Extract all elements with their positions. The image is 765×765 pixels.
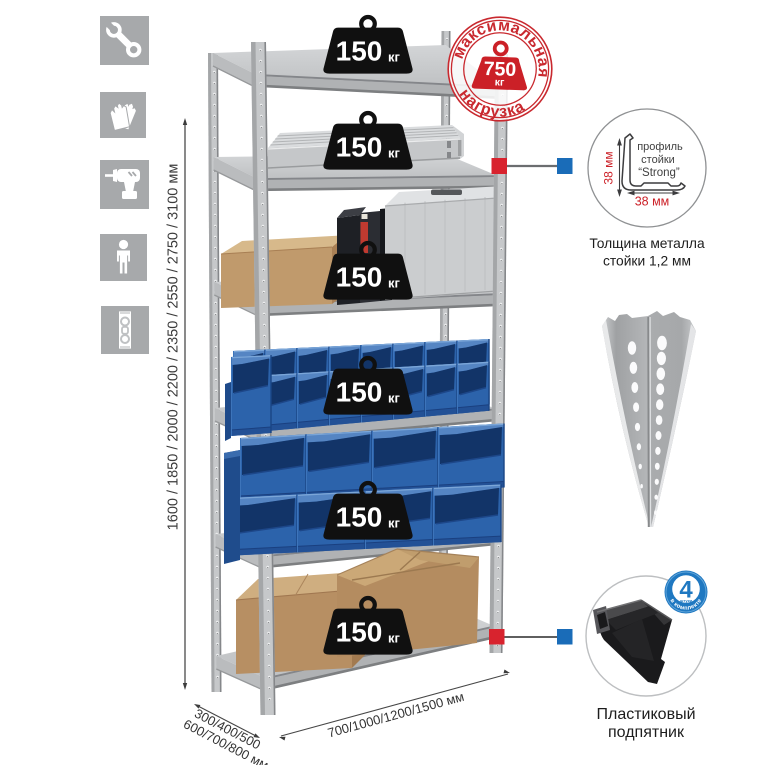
- svg-text:стойки: стойки: [641, 154, 675, 166]
- svg-text:кг: кг: [495, 76, 506, 88]
- svg-text:“Strong”: “Strong”: [638, 167, 680, 179]
- svg-text:кг: кг: [388, 631, 401, 646]
- svg-text:150: 150: [336, 36, 383, 67]
- svg-text:кг: кг: [388, 391, 401, 406]
- svg-text:150: 150: [336, 132, 383, 163]
- svg-text:150: 150: [336, 262, 383, 293]
- svg-text:кг: кг: [388, 146, 401, 161]
- svg-text:стойки 1,2 мм: стойки 1,2 мм: [603, 254, 691, 269]
- svg-text:штуки: штуки: [680, 598, 693, 603]
- svg-text:профиль: профиль: [637, 141, 683, 153]
- svg-text:подпятник: подпятник: [608, 724, 685, 741]
- svg-text:кг: кг: [388, 516, 401, 531]
- svg-text:150: 150: [336, 617, 383, 648]
- svg-text:Толщина металла: Толщина металла: [589, 236, 705, 251]
- svg-text:150: 150: [336, 502, 383, 533]
- svg-text:кг: кг: [388, 50, 401, 65]
- svg-text:150: 150: [336, 377, 383, 408]
- svg-text:38 мм: 38 мм: [602, 151, 616, 184]
- svg-text:кг: кг: [388, 276, 401, 291]
- svg-text:38 мм: 38 мм: [635, 195, 670, 209]
- svg-text:1600 / 1850 / 2000 / 2200 / 23: 1600 / 1850 / 2000 / 2200 / 2350 / 2550 …: [166, 164, 182, 531]
- svg-text:Пластиковый: Пластиковый: [596, 706, 695, 723]
